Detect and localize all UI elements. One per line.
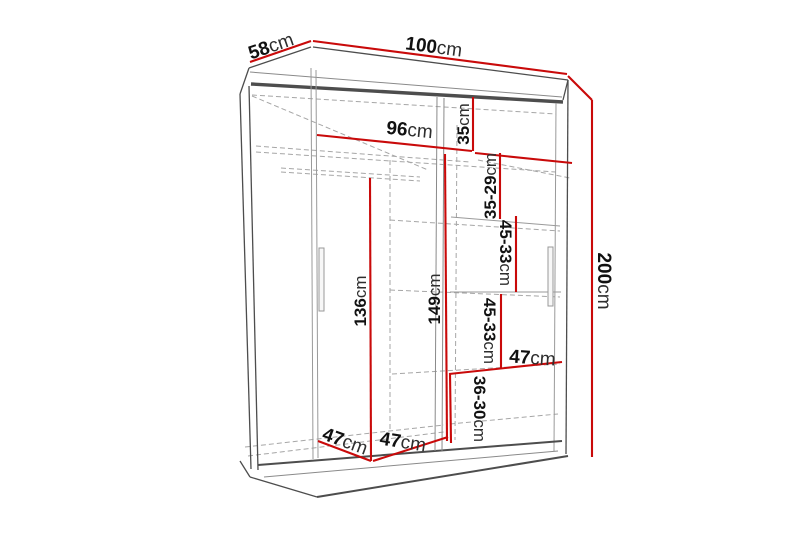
label-depth: 58cm: [246, 29, 297, 64]
label-top-shelf-drop: 35cm: [454, 103, 473, 145]
label-middle-gap-lower: 45-33cm: [480, 298, 499, 364]
wardrobe-dimension-diagram: 58cm 100cm 200cm 96cm 35cm 35-29cm 45-33…: [0, 0, 800, 533]
diagram-canvas: 58cm 100cm 200cm 96cm 35cm 35-29cm 45-33…: [0, 0, 800, 533]
label-upper-gap: 35-29cm: [481, 153, 500, 219]
dim-tick-height-top: [568, 76, 592, 100]
right-outer-edge: [566, 80, 568, 454]
label-divider-height: 149cm: [425, 273, 444, 324]
right-inner-edge: [554, 103, 556, 451]
label-left-section-width: 47cm: [319, 424, 370, 460]
left-foot-corner-edge: [240, 461, 250, 477]
floor-back-right-hidden: [450, 414, 558, 424]
label-width: 100cm: [404, 33, 463, 61]
base-bottom-edge: [317, 456, 568, 497]
shelf2-back-hidden: [390, 220, 560, 231]
label-right-section-width: 47cm: [378, 429, 427, 457]
label-height: 200cm: [593, 252, 614, 309]
label-interior-width: 96cm: [385, 118, 433, 143]
left-outer-edge: [240, 94, 251, 469]
hidden-interior-lines: [245, 95, 570, 456]
left-front-edge: [249, 86, 258, 470]
dim-line-hanging-height: [370, 178, 371, 461]
label-hanging-height: 136cm: [351, 275, 370, 326]
left-wall-edge-a: [311, 68, 313, 459]
clothes-rail-hidden-a: [281, 168, 420, 177]
right-door-handle: [548, 247, 553, 306]
dim-line-divider-height: [445, 154, 447, 441]
wardrobe-outline: [240, 47, 568, 497]
clothes-rail-hidden-b: [281, 172, 420, 181]
divider-inner-edge-hidden: [455, 125, 457, 440]
top-slab-right-end: [563, 80, 568, 100]
label-shelf-width-right: 47cm: [508, 346, 556, 370]
label-bottom-gap: 36-30cm: [470, 376, 489, 442]
dim-line-bottom-gap: [450, 374, 451, 443]
left-wall-edge-b: [316, 70, 318, 458]
base-left-foot-edge: [250, 477, 317, 497]
shelf3-back-hidden: [390, 290, 560, 297]
top-slab-left-end: [240, 68, 249, 94]
left-door-handle: [319, 248, 324, 311]
dimension-lines: [250, 41, 592, 461]
label-middle-gap-upper: 45-33cm: [496, 220, 515, 286]
